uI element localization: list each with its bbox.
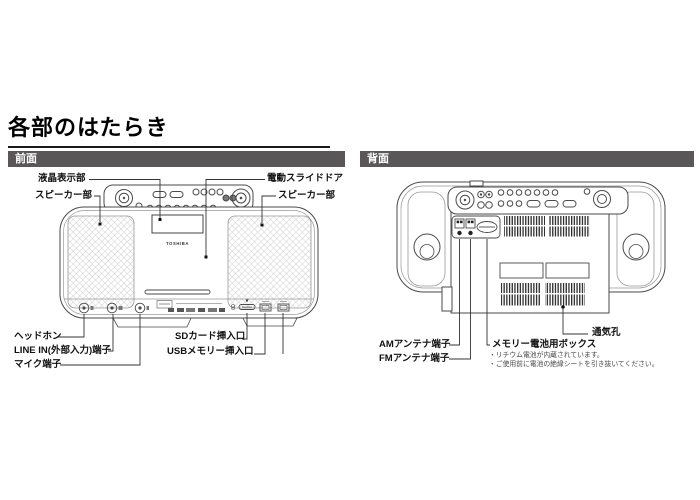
label-am-antenna: AMアンテナ端子 [379,340,450,350]
label-line-in: LINE IN(外部入力)端子 [14,346,111,356]
label-speaker-right: スピーカー部 [278,191,335,201]
label-mic: マイク端子 [14,360,61,370]
title-underline [8,146,330,148]
back-top-tab [470,181,483,186]
label-sd-slot: SDカード挿入口 [175,332,245,342]
back-cord-tab [442,287,452,311]
vent-dot [561,305,565,309]
battery-note-1: ・リチウム電池が内蔵されています。 [489,351,604,360]
front-right-speaker [228,216,311,308]
front-section-label: 前面 [15,153,37,165]
page-title: 各部のはたらき [8,110,169,142]
manual-page: 各部のはたらき 前面 背面 [0,0,700,500]
battery-note-2: ・ご使用前に電池の絶縁シートを引き抜いてください。 [489,360,659,369]
label-slide-door: 電動スライドドア [267,174,343,184]
label-fm-antenna: FMアンテナ端子 [379,354,449,364]
mic-icon [147,306,150,310]
back-section-label: 背面 [367,153,389,165]
back-control-panel [448,187,628,214]
label-vent: 通気孔 [592,328,621,338]
line-in-icon [119,306,123,310]
label-speaker-left: スピーカー部 [35,191,92,201]
label-usb-slot: USBメモリー挿入口 [167,347,254,357]
front-left-speaker [68,216,134,308]
headphone-icon [91,306,94,310]
label-headphone: ヘッドホン [14,332,62,342]
label-memory-battery-box: メモリー電池用ボックス [492,340,596,350]
front-stands [113,318,297,327]
label-lcd: 液晶表示部 [38,174,86,184]
brand-text: TOSHIBA [166,241,189,246]
